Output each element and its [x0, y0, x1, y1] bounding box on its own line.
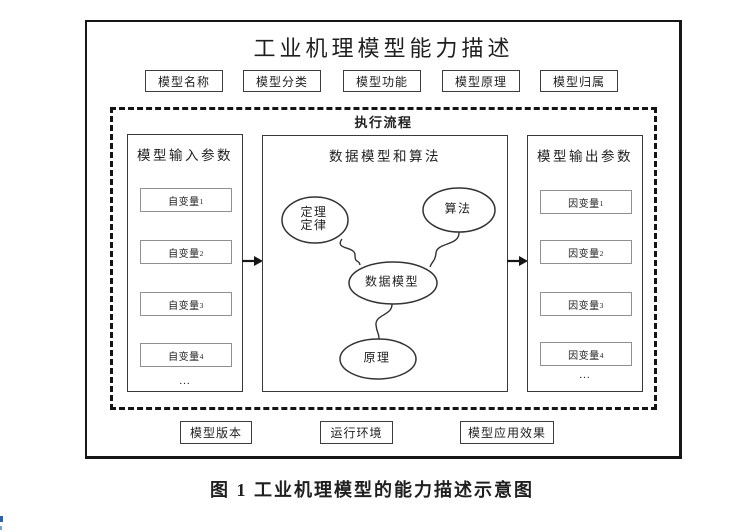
attribute-box-model-principle: 模型原理: [442, 70, 520, 92]
input-variable-box-2: 自变量2: [140, 240, 232, 264]
variable-index: 3: [200, 301, 204, 315]
variable-label: 因变量: [568, 195, 600, 210]
input-panel-title: 模型输入参数: [128, 144, 242, 164]
attribute-box-label: 模型原理: [455, 73, 507, 90]
output-variable-box-1: 因变量1: [540, 190, 632, 214]
figure-caption: 图 1 工业机理模型的能力描述示意图: [0, 476, 744, 502]
variable-index: 2: [200, 249, 204, 263]
attribute-box-model-category: 模型分类: [243, 70, 321, 92]
output-variable-box-3: 因变量3: [540, 292, 632, 316]
variable-index: 4: [200, 352, 204, 366]
variable-index: 4: [600, 351, 604, 365]
variable-label: 自变量: [168, 193, 200, 208]
figure-title: 工业机理模型能力描述: [85, 31, 682, 63]
footer-box-label: 模型应用效果: [468, 424, 546, 441]
attribute-box-label: 模型分类: [256, 73, 308, 90]
footer-box-label: 模型版本: [190, 424, 242, 441]
input-variable-box-4: 自变量4: [140, 343, 232, 367]
attribute-box-label: 模型归属: [553, 73, 605, 90]
variable-index: 1: [200, 197, 204, 211]
input-variable-box-1: 自变量1: [140, 188, 232, 212]
variable-index: 3: [600, 301, 604, 315]
attribute-box-label: 模型功能: [356, 73, 408, 90]
attribute-box-model-name: 模型名称: [145, 70, 223, 92]
output-variable-box-2: 因变量2: [540, 240, 632, 264]
output-panel-title: 模型输出参数: [528, 145, 642, 165]
output-variable-box-4: 因变量4: [540, 342, 632, 366]
algorithm-connector: [430, 232, 459, 267]
variable-label: 因变量: [568, 297, 600, 312]
variable-label: 自变量: [168, 297, 200, 312]
figure-canvas: 工业机理模型能力描述 模型名称 模型分类 模型功能 模型原理 模型归属 执行流程…: [0, 0, 744, 532]
theorem-node-label: 定理 定律: [300, 206, 327, 232]
variable-label: 因变量: [568, 347, 600, 362]
variable-label: 因变量: [568, 245, 600, 260]
data-model-node-label: 数据模型: [365, 276, 419, 289]
arrow-right-icon: [242, 255, 263, 267]
arrow-right-icon: [507, 255, 528, 267]
footer-box-application-effect: 模型应用效果: [460, 421, 554, 444]
footer-box-runtime-environment: 运行环境: [320, 421, 393, 444]
algorithm-node-label: 算法: [444, 203, 471, 216]
footer-box-label: 运行环境: [330, 424, 382, 441]
variable-label: 自变量: [168, 245, 200, 260]
edge-artifact-bottom: [0, 526, 2, 530]
variable-label: 自变量: [168, 348, 200, 363]
input-variable-box-3: 自变量3: [140, 292, 232, 316]
edge-artifact-top: [0, 516, 3, 522]
principle-connector: [376, 303, 392, 339]
theorem-connector: [340, 239, 360, 265]
variable-index: 1: [600, 199, 604, 213]
input-ellipsis: ...: [127, 375, 243, 387]
variable-index: 2: [600, 249, 604, 263]
theorem-line2: 定律: [300, 219, 327, 232]
attribute-box-model-ownership: 模型归属: [540, 70, 618, 92]
output-ellipsis: ...: [527, 369, 643, 381]
attribute-box-model-function: 模型功能: [343, 70, 421, 92]
footer-box-model-version: 模型版本: [180, 421, 252, 444]
principle-node-label: 原理: [363, 352, 390, 365]
execution-process-label: 执行流程: [110, 112, 657, 131]
attribute-box-label: 模型名称: [158, 73, 210, 90]
